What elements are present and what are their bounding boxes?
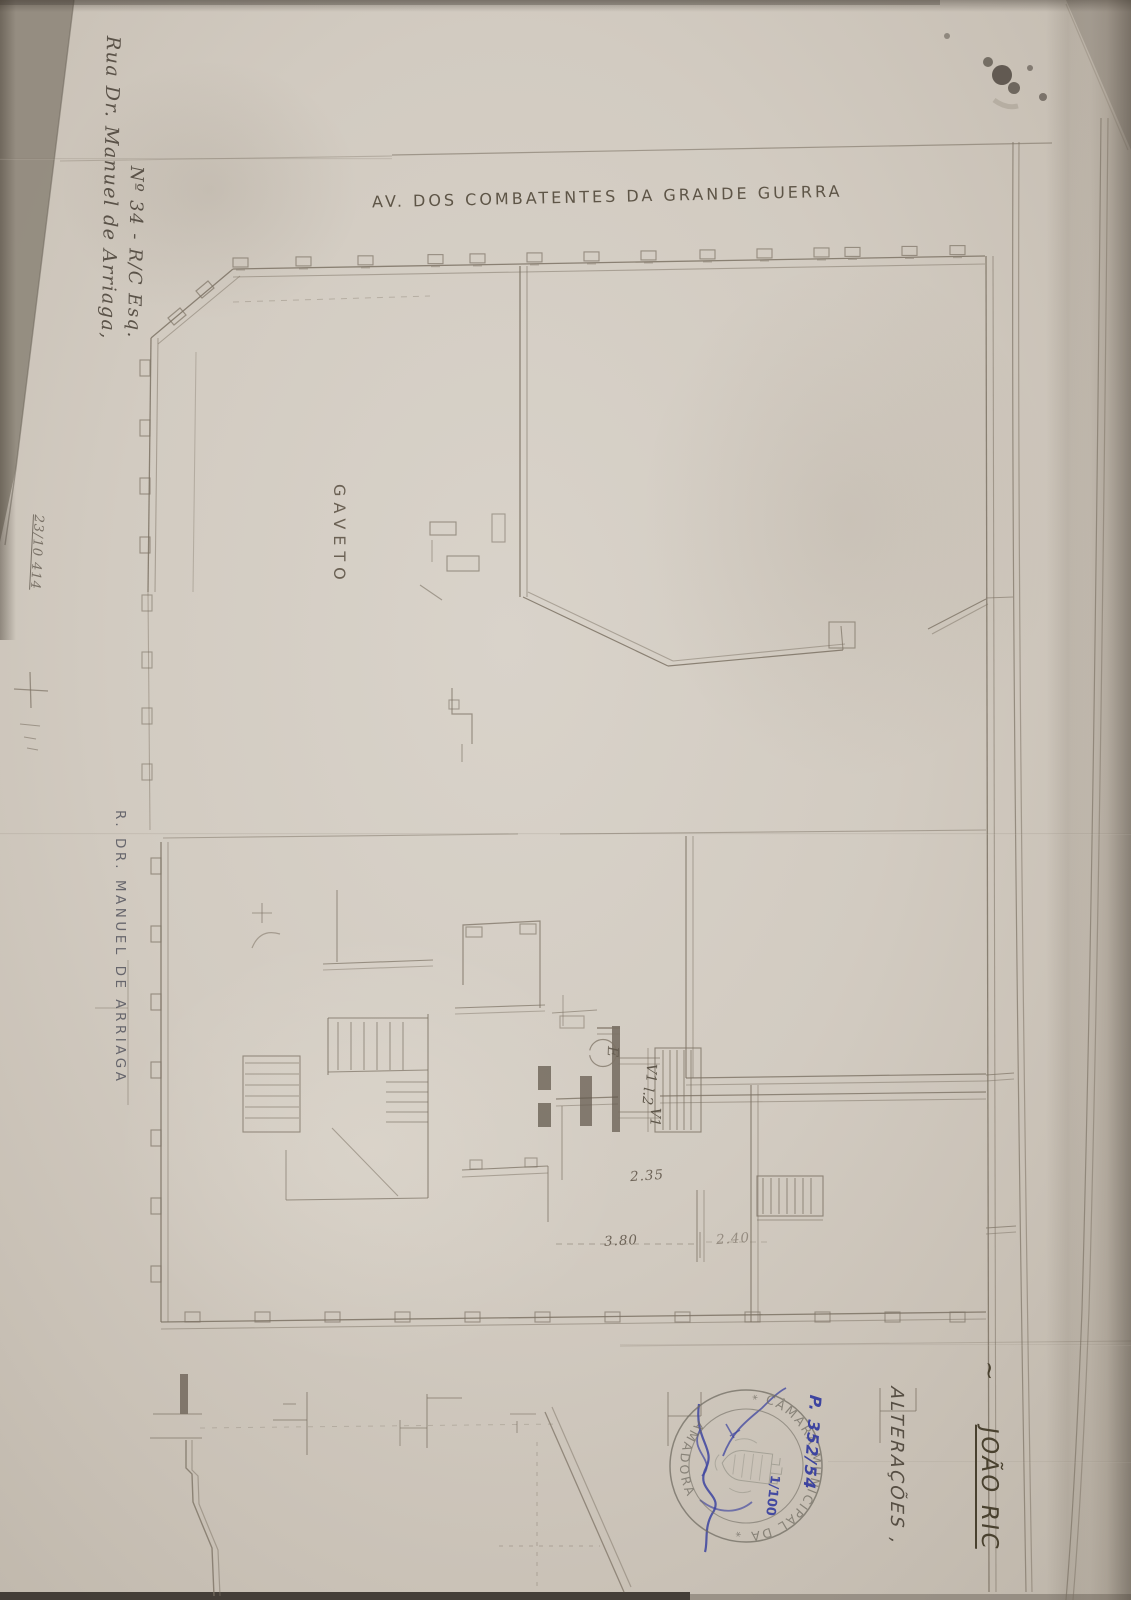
stamp-text-bottom: AMADORA [672, 1416, 708, 1501]
shaft-label-l2: l.2 [639, 1087, 656, 1106]
dimension-2-40: 2.40 [715, 1230, 750, 1248]
owner-name-text: JOÃO RIC [976, 1425, 1002, 1553]
corner-label-gaveto: GAVETO [330, 484, 349, 586]
stamp-ring-inner [682, 1402, 809, 1529]
paper-crease [0, 833, 1131, 835]
municipal-stamp: CÂMARA MUNICIPAL DA AMADORA * * [636, 1356, 856, 1576]
dimension-3-80: 3.80 [604, 1232, 639, 1250]
owner-name-note: ~JOÃO RIC [976, 1359, 1002, 1553]
owner-tilde: ~ [976, 1359, 1002, 1385]
paper-crease [620, 1344, 1131, 1346]
svg-text:E: E [604, 1045, 622, 1058]
paper-crease [0, 158, 392, 160]
scanned-floorplan-page: E AV. DOS COMBATENTES DA GRANDE GUERRA R… [0, 0, 1131, 1600]
alterations-note: ALTERAÇÕES , [886, 1386, 907, 1548]
address-note-line2: Nº 34 - R/C Esq. [123, 166, 147, 339]
stamp-separator-left: * [746, 1394, 760, 1402]
shaft-label-v1-top: V1 [642, 1063, 659, 1083]
dimension-2-35: 2.35 [629, 1167, 664, 1185]
shaft-label-v1-bottom: V1 [646, 1107, 663, 1127]
street-label-rua-arriaga: R. DR. MANUEL DE ARRIAGA [112, 810, 128, 1084]
stamp-separator-right: * [729, 1531, 743, 1539]
floorplan-drawing: E [0, 0, 1131, 1600]
